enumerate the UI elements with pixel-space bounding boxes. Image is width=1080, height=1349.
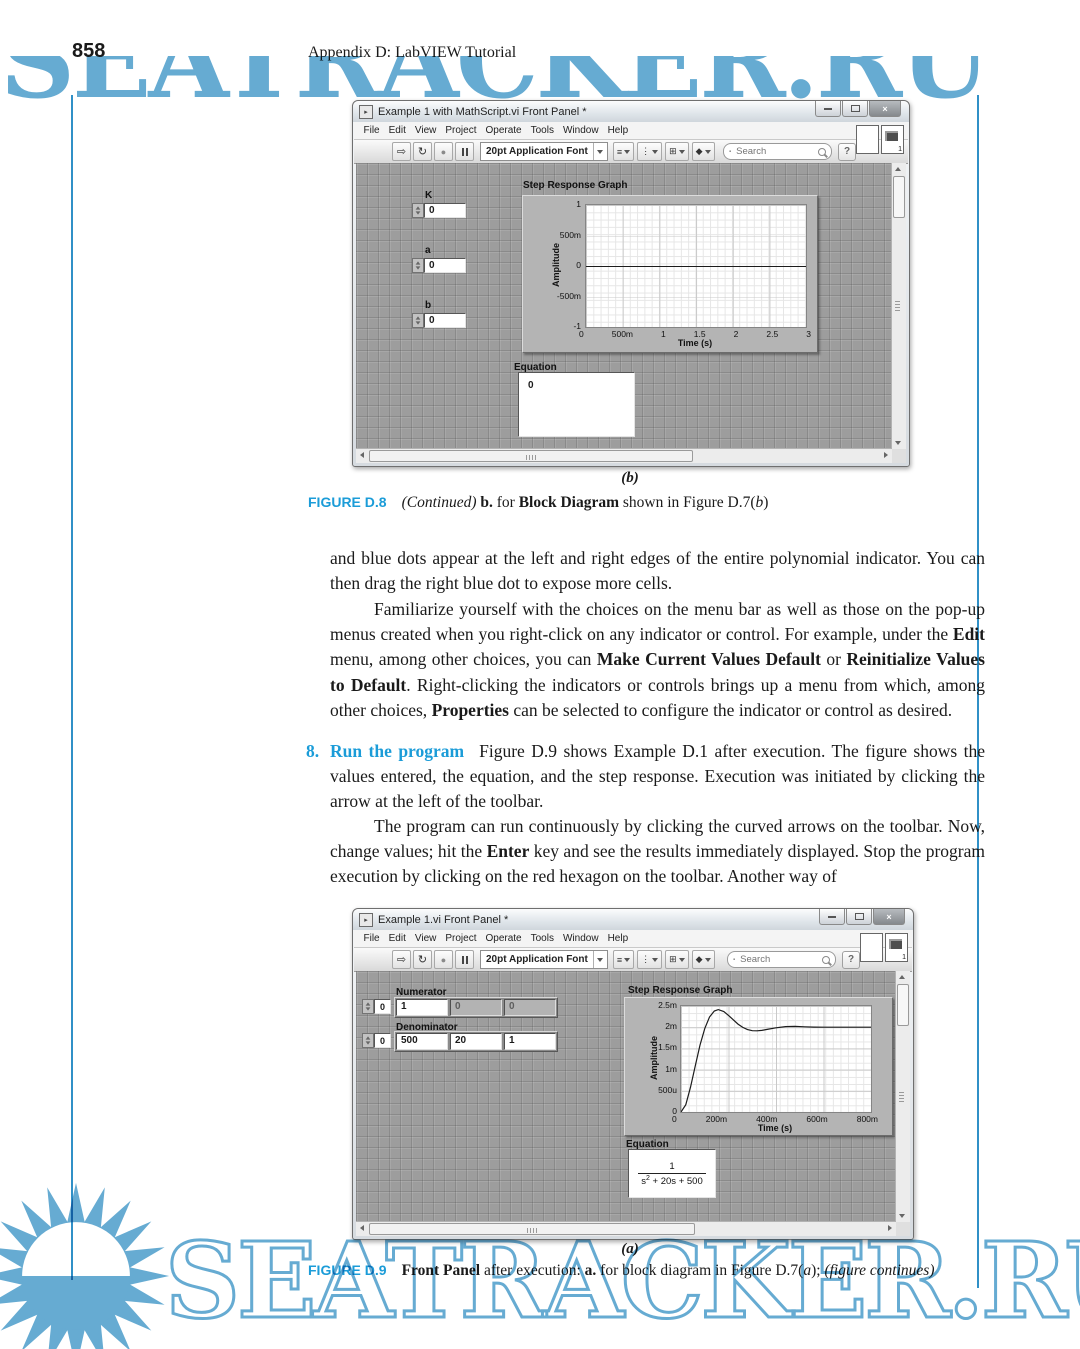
search-filter-icon: ▪ xyxy=(733,957,735,963)
array-cell[interactable]: 1 xyxy=(396,999,448,1016)
x-tick-label: 0 xyxy=(579,329,584,339)
title-bar[interactable]: ▸ Example 1.vi Front Panel * × xyxy=(353,909,913,930)
scrollbar-thumb[interactable] xyxy=(897,984,909,1026)
menu-item[interactable]: Edit xyxy=(384,933,410,944)
vi-thumbnail-icon[interactable]: 1 xyxy=(885,933,908,962)
array-cell[interactable]: 0 xyxy=(450,999,502,1016)
list-number: 8. xyxy=(306,739,319,764)
scrollbar-thumb[interactable] xyxy=(893,176,905,218)
vi-icon: ▸ xyxy=(359,105,373,119)
context-help-button[interactable]: ? xyxy=(838,143,856,161)
window-title: Example 1 with MathScript.vi Front Panel… xyxy=(378,106,586,118)
x-axis-label: Time (s) xyxy=(680,1123,870,1133)
menu-item[interactable]: Edit xyxy=(384,125,410,136)
zero-response-line xyxy=(586,266,806,267)
menu-item[interactable]: View xyxy=(410,933,441,944)
x-tick-label: 3 xyxy=(806,329,811,339)
waveform-graph: 2.5m2m1.5m1m500u0 Amplitude 0200m400m600… xyxy=(624,997,893,1136)
numeric-field-a[interactable]: 0 xyxy=(424,258,466,273)
menu-item[interactable]: File xyxy=(359,933,384,944)
increment-decrement-spinner[interactable] xyxy=(362,999,374,1014)
sun-rays xyxy=(0,1183,169,1349)
align-tool-dropdown[interactable]: ≡ xyxy=(613,142,634,161)
increment-decrement-spinner[interactable] xyxy=(412,313,424,328)
align-tool-dropdown[interactable]: ≡ xyxy=(613,950,634,969)
list-item-8: 8. Run the programFigure D.9 shows Examp… xyxy=(330,739,985,815)
close-button[interactable]: × xyxy=(873,909,905,925)
menu-item[interactable]: Help xyxy=(603,933,633,944)
labview-window-mathscript: ▸ Example 1 with MathScript.vi Front Pan… xyxy=(352,100,910,467)
numerator-array: 1 0 0 xyxy=(394,997,558,1018)
equation-indicator: 1 s2 + 20s + 500 xyxy=(628,1149,716,1198)
control-label: a xyxy=(412,245,466,258)
vi-icon-panel: 1 xyxy=(860,933,908,962)
front-panel-client: K 0 a 0 b 0 xyxy=(356,163,906,463)
run-continuously-button[interactable]: ↻ xyxy=(413,142,432,161)
front-panel-grid: 0 Numerator 1 0 0 Denominator 0 xyxy=(356,971,896,1222)
font-selector[interactable]: 20pt Application Font xyxy=(480,950,608,969)
array-cell[interactable]: 20 xyxy=(450,1033,502,1050)
run-button[interactable]: ⇨ xyxy=(392,142,411,161)
step-title: Run the program xyxy=(330,741,464,761)
title-bar[interactable]: ▸ Example 1 with MathScript.vi Front Pan… xyxy=(353,101,909,122)
vertical-scrollbar[interactable] xyxy=(895,971,910,1222)
y-tick-label: 500u xyxy=(658,1085,677,1095)
connector-pane-box[interactable] xyxy=(856,125,879,154)
horizontal-scrollbar[interactable] xyxy=(356,448,892,463)
increment-decrement-spinner[interactable] xyxy=(362,1033,374,1048)
scrollbar-thumb[interactable] xyxy=(369,450,693,462)
minimize-button[interactable] xyxy=(819,909,845,925)
search-input[interactable] xyxy=(738,953,822,966)
y-tick-label: 2.5m xyxy=(658,1000,677,1010)
paragraph: Familiarize yourself with the choices on… xyxy=(330,597,985,723)
numeric-field-b[interactable]: 0 xyxy=(424,313,466,328)
array-cell[interactable]: 1 xyxy=(504,1033,556,1050)
align-tool-dropdown[interactable]: ◆ xyxy=(692,950,715,969)
sub-caption-b: (b) xyxy=(352,470,908,487)
plot-area xyxy=(680,1005,872,1113)
y-tick-label: 1m xyxy=(665,1064,677,1074)
search-box[interactable]: ▪ xyxy=(723,143,832,160)
paragraph: The program can run continuously by clic… xyxy=(330,814,985,890)
window-title: Example 1.vi Front Panel * xyxy=(378,914,508,926)
front-panel-client: 0 Numerator 1 0 0 Denominator 0 xyxy=(356,971,910,1236)
magnifier-icon xyxy=(818,148,826,156)
run-button[interactable]: ⇨ xyxy=(392,950,411,969)
search-filter-icon: ▪ xyxy=(729,149,731,155)
sub-caption-a: (a) xyxy=(352,1241,908,1258)
page-number: 858 xyxy=(72,40,105,63)
denominator-index[interactable]: 0 xyxy=(374,1033,391,1048)
menu-item[interactable]: Window xyxy=(558,933,603,944)
vertical-scrollbar[interactable] xyxy=(891,163,906,449)
align-tool-dropdown[interactable]: ⋮ xyxy=(637,950,662,969)
align-tool-dropdown[interactable]: ◆ xyxy=(692,142,715,161)
menu-item[interactable]: Window xyxy=(558,125,603,136)
menu-item[interactable]: Project xyxy=(441,933,481,944)
labview-window-example1: ▸ Example 1.vi Front Panel * × FileEditV… xyxy=(352,908,914,1240)
y-tick-label: 500m xyxy=(560,230,581,240)
numeric-control-a: a 0 xyxy=(412,245,466,273)
control-label: b xyxy=(412,300,466,313)
pause-button[interactable] xyxy=(455,950,474,969)
denominator-array: 500 20 1 xyxy=(394,1031,558,1052)
vi-icon: ▸ xyxy=(359,913,373,927)
equation-indicator: 0 xyxy=(518,372,635,437)
waveform-graph: 1500m0-500m-1 Amplitude 0500m11.522.53 T… xyxy=(522,195,818,353)
menu-bar: FileEditViewProjectOperateToolsWindowHel… xyxy=(354,122,908,140)
numerator-index-control: 0 xyxy=(362,999,391,1014)
denominator-index-control: 0 xyxy=(362,1033,391,1048)
increment-decrement-spinner[interactable] xyxy=(412,203,424,218)
graph-title: Step Response Graph xyxy=(523,180,627,191)
menu-item[interactable]: Project xyxy=(441,125,481,136)
menu-item[interactable]: View xyxy=(410,125,441,136)
abort-button[interactable]: ● xyxy=(434,950,453,969)
run-continuously-button[interactable]: ↻ xyxy=(413,950,432,969)
close-button[interactable]: × xyxy=(869,101,901,117)
restore-button[interactable] xyxy=(846,909,872,925)
numerator-index[interactable]: 0 xyxy=(374,999,391,1014)
vi-icon-panel: 1 xyxy=(856,125,904,154)
restore-button[interactable] xyxy=(842,101,868,117)
paragraph: and blue dots appear at the left and rig… xyxy=(330,546,985,596)
figure-tag: FIGURE D.8 xyxy=(308,494,387,510)
graph-title: Step Response Graph xyxy=(628,985,732,996)
chevron-down-icon[interactable] xyxy=(593,951,607,968)
y-tick-label: 1.5m xyxy=(658,1042,677,1052)
plot-area xyxy=(585,204,807,328)
array-cell[interactable]: 500 xyxy=(396,1033,448,1050)
chevron-down-icon[interactable] xyxy=(593,143,607,160)
x-axis-label: Time (s) xyxy=(585,338,805,348)
toolbar: ⇨ ↻ ● 20pt Application Font ≡⋮⊞◆ ▪ ? xyxy=(354,948,912,972)
numeric-control-K: K 0 xyxy=(412,190,466,218)
figure-tag: FIGURE D.9 xyxy=(308,1262,387,1278)
context-help-button[interactable]: ? xyxy=(842,951,860,969)
search-input[interactable] xyxy=(734,145,818,158)
y-axis-label: Amplitude xyxy=(649,1005,659,1111)
menu-bar: FileEditViewProjectOperateToolsWindowHel… xyxy=(354,930,912,948)
step-response-curve xyxy=(681,1006,871,1112)
toolbar: ⇨ ↻ ● 20pt Application Font ≡⋮⊞◆ ▪ ? xyxy=(354,140,908,164)
minimize-button[interactable] xyxy=(815,101,841,117)
abort-button[interactable]: ● xyxy=(434,142,453,161)
align-tool-dropdown[interactable]: ⊞ xyxy=(665,950,689,969)
left-margin-rule xyxy=(71,95,73,1280)
transfer-function-fraction: 1 s2 + 20s + 500 xyxy=(638,1161,705,1187)
scrollbar-corner xyxy=(896,1222,910,1236)
vi-thumbnail-icon[interactable]: 1 xyxy=(881,125,904,154)
align-tool-dropdown[interactable]: ⋮ xyxy=(637,142,662,161)
x-tick-label: 0 xyxy=(672,1114,677,1124)
y-tick-label: 1 xyxy=(576,199,581,209)
menu-item[interactable]: Help xyxy=(603,125,633,136)
menu-item[interactable]: Operate xyxy=(481,933,526,944)
array-cell[interactable]: 0 xyxy=(504,999,556,1016)
figure-d9-caption: FIGURE D.9Front Panel after execution: a… xyxy=(308,1262,1008,1280)
horizontal-scrollbar[interactable] xyxy=(356,1221,896,1236)
connector-pane-box[interactable] xyxy=(860,933,883,962)
menu-item[interactable]: Tools xyxy=(526,933,558,944)
scrollbar-thumb[interactable] xyxy=(369,1223,695,1235)
search-box[interactable]: ▪ xyxy=(727,951,836,968)
pause-button[interactable] xyxy=(455,142,474,161)
sun-logo-icon xyxy=(0,1178,174,1349)
font-selector[interactable]: 20pt Application Font xyxy=(480,142,608,161)
front-panel-grid: K 0 a 0 b 0 xyxy=(356,163,892,449)
control-label: K xyxy=(412,190,466,203)
menu-item[interactable]: Tools xyxy=(526,125,558,136)
menu-item[interactable]: File xyxy=(359,125,384,136)
y-tick-label: 2m xyxy=(665,1021,677,1031)
book-page: 858 Appendix D: LabVIEW Tutorial ▸ Examp… xyxy=(0,0,1080,1349)
y-axis-label: Amplitude xyxy=(551,204,561,326)
numeric-control-b: b 0 xyxy=(412,300,466,328)
scrollbar-corner xyxy=(892,449,906,463)
increment-decrement-spinner[interactable] xyxy=(412,258,424,273)
numeric-field-K[interactable]: 0 xyxy=(424,203,466,218)
align-tool-dropdown[interactable]: ⊞ xyxy=(665,142,689,161)
figure-d8-caption: FIGURE D.8(Continued) b. for Block Diagr… xyxy=(308,494,1008,512)
y-tick-label: 0 xyxy=(576,260,581,270)
magnifier-icon xyxy=(822,956,830,964)
running-head: Appendix D: LabVIEW Tutorial xyxy=(308,44,516,62)
menu-item[interactable]: Operate xyxy=(481,125,526,136)
